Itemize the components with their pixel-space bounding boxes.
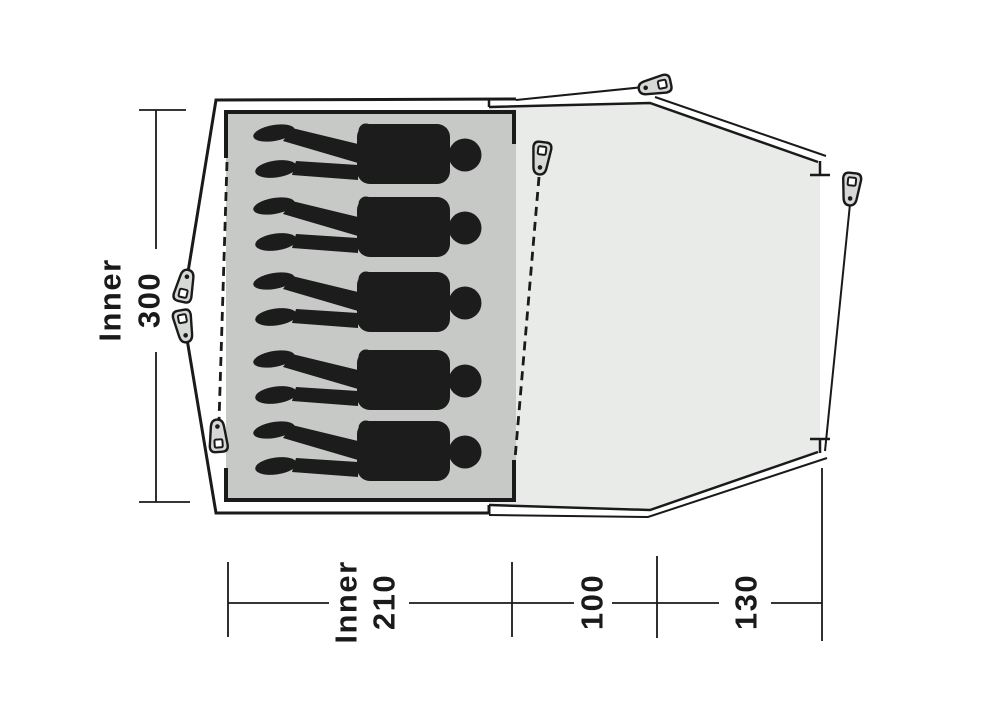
tent-floorplan-diagram: Inner 300 Inner 210 100 130 (0, 0, 1000, 715)
dimension-inner-depth: Inner 300 (93, 110, 191, 502)
tent-floorplan-page: Inner 300 Inner 210 100 130 (0, 0, 1000, 715)
guy-line-top (516, 87, 644, 100)
tent-peg-icon (172, 309, 196, 344)
tent-peg-icon (637, 74, 673, 98)
inner-door-dashed-left (219, 162, 227, 421)
dimension-value-210: 210 (367, 574, 402, 630)
tent-peg-icon (172, 268, 197, 304)
dimension-value-130: 130 (729, 574, 764, 630)
dimension-value-100: 100 (575, 574, 610, 630)
dimension-value-300: 300 (132, 272, 167, 328)
tent-peg-icon (840, 172, 861, 206)
guy-line-right (825, 204, 850, 451)
tent-peg-icon (208, 419, 228, 453)
dimension-label-inner: Inner (93, 258, 128, 341)
dimension-label-inner-width: Inner (329, 560, 364, 643)
